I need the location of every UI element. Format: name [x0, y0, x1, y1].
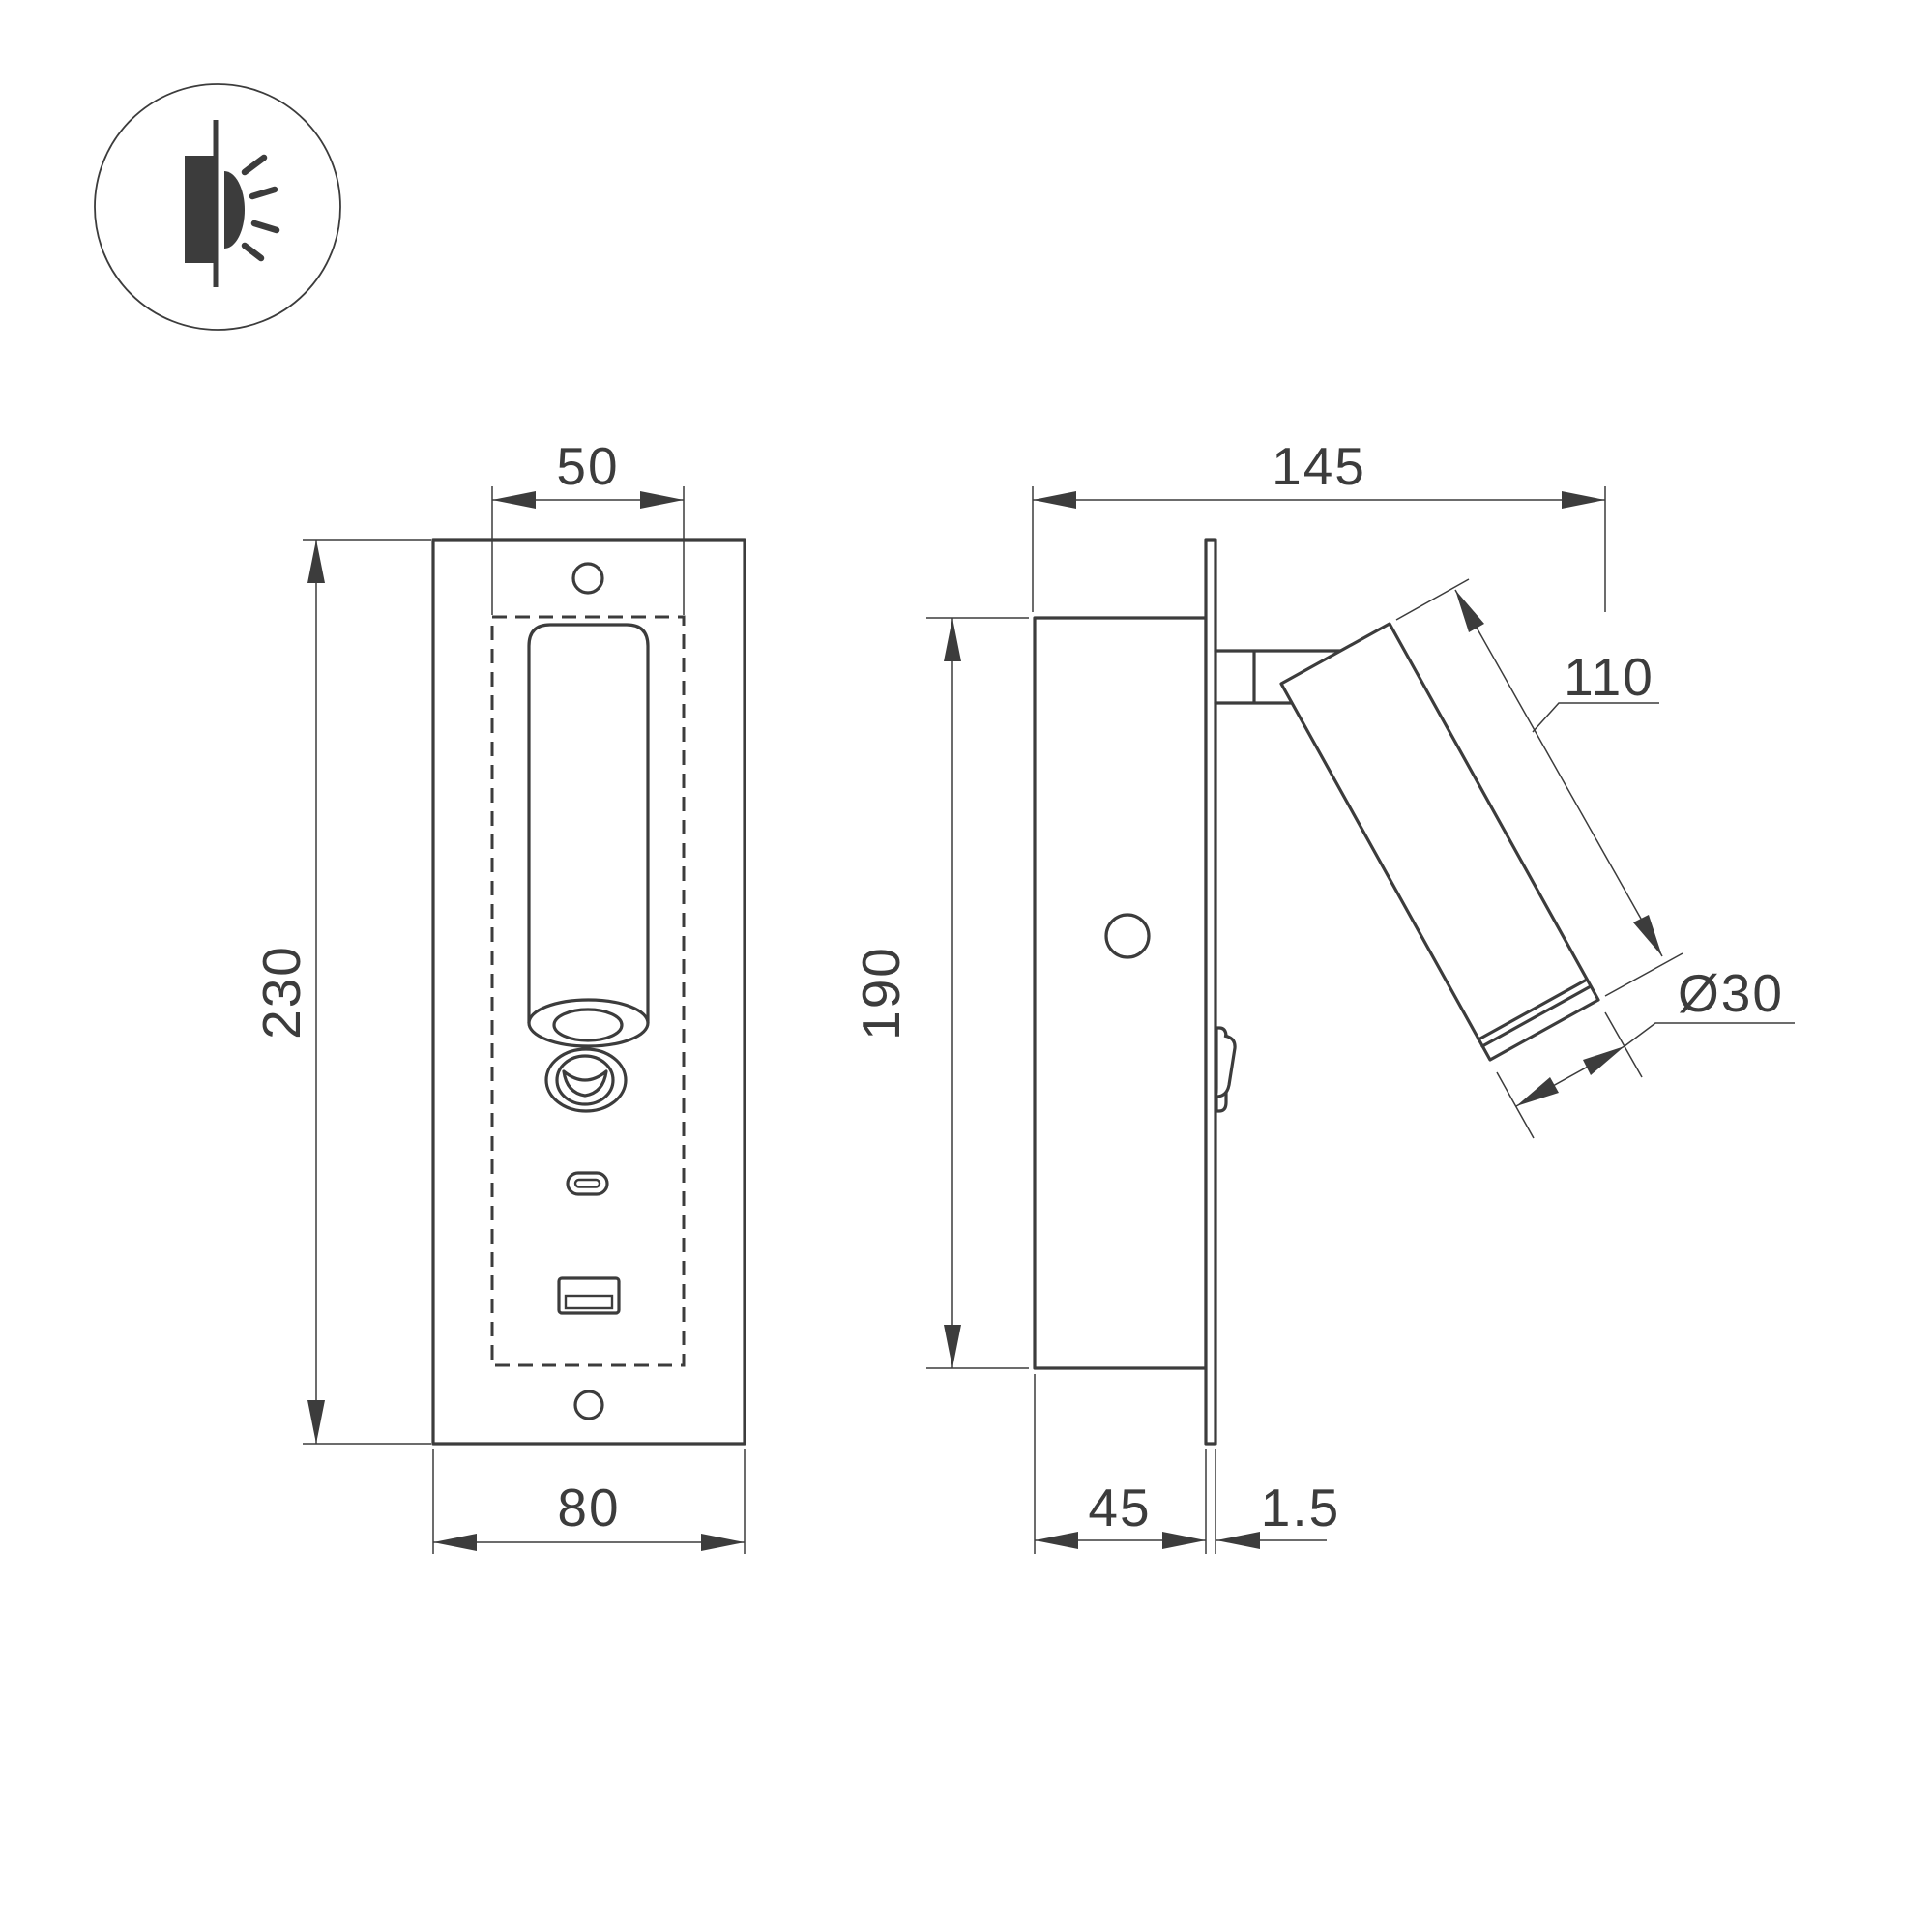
- dim-label-45: 45: [1088, 1478, 1151, 1537]
- icon-recessed-box: [185, 156, 216, 263]
- dim-label-230: 230: [251, 945, 311, 1039]
- drawing-canvas: 50 230 80: [0, 0, 1932, 1932]
- arrowhead: [1216, 1532, 1260, 1549]
- dim-label-50: 50: [556, 436, 619, 496]
- dim-label-80: 80: [557, 1478, 620, 1537]
- cable-hole: [1106, 915, 1149, 957]
- leader-line: [1625, 1023, 1795, 1046]
- dim-label-d30: Ø30: [1678, 963, 1784, 1023]
- screw-hole-bottom: [575, 1391, 602, 1419]
- toggle-knob-front: [546, 1049, 626, 1111]
- toggle-switch-side: [1216, 1028, 1235, 1111]
- recessed-wall-light-icon: [95, 84, 340, 330]
- extension-lines: [926, 618, 1029, 1368]
- extension-lines: [303, 540, 431, 1444]
- dimension-recess-depth-45: 45: [1035, 1374, 1206, 1554]
- extension-lines: [1033, 486, 1605, 612]
- leader-line: [1533, 703, 1659, 732]
- lamp-head-side: [1281, 624, 1598, 1060]
- dimension-plate-thickness-1点5: 1.5: [1215, 1449, 1340, 1554]
- dim-label-190: 190: [851, 946, 911, 1040]
- faceplate-side: [1206, 540, 1215, 1444]
- dim-label-110: 110: [1564, 647, 1654, 707]
- usb-c-port: [568, 1173, 607, 1194]
- dimension-body-height-190: 190: [851, 618, 1029, 1368]
- dimension-total-depth-145: 145: [1033, 436, 1605, 612]
- usb-c-outline: [568, 1173, 607, 1194]
- side-view: 145 190 45 1.5 110: [851, 436, 1795, 1554]
- lamp-cylinder-front: [529, 625, 648, 1023]
- usb-a-port: [559, 1278, 619, 1313]
- front-view: 50 230 80: [251, 436, 745, 1554]
- technical-drawing-page: 50 230 80: [0, 0, 1932, 1932]
- lamp-lens: [554, 1010, 622, 1040]
- screw-hole-top: [573, 564, 602, 593]
- dimension-height-230: 230: [251, 540, 431, 1444]
- dim-label-1-5: 1.5: [1261, 1478, 1340, 1537]
- dimension-bottom-width-80: 80: [433, 1449, 745, 1554]
- dim-label-145: 145: [1272, 436, 1366, 496]
- recessed-box-side: [1035, 618, 1206, 1368]
